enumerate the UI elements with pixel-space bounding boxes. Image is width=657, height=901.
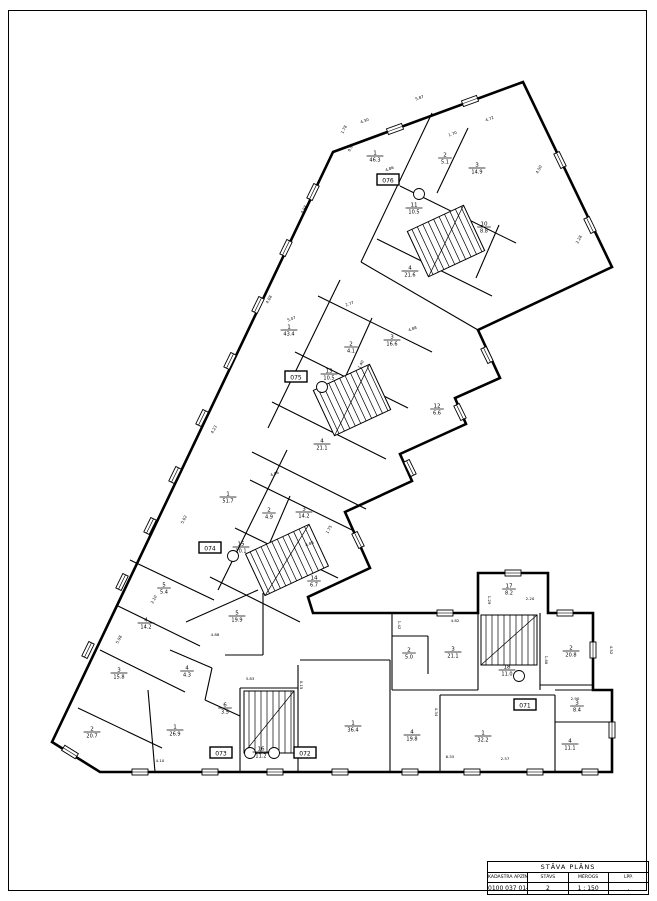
room-number: 3 [451,647,455,653]
title-block-page: . [608,883,648,895]
room-number: 4 [568,739,572,745]
room-area: 4.1 [347,349,355,355]
window-tick [582,769,598,775]
dimension-label: 4.88 [211,632,220,637]
room-area: 6.7 [310,583,318,589]
stair-hatch [244,691,294,753]
window-tick [402,769,418,775]
room-area: 5.4 [160,590,168,596]
dimension-label: 5.87 [415,94,425,102]
dimension-label: 1.78 [339,124,348,134]
stair-level-marker [414,189,425,200]
dimension-label: 0.15 [299,681,304,690]
dimension-label: 2.57 [501,756,510,761]
room-number: 4 [144,618,148,624]
dimension-label: 2.20 [526,596,535,601]
dimension-label: 4.34 [434,708,439,717]
unit-tag: 073 [210,747,232,758]
unit-tag: 072 [294,747,316,758]
unit-tag: 075 [285,371,307,382]
window-tick [505,570,521,576]
room-area: 8.8 [480,229,488,235]
dimension-label: 4.82 [451,618,460,623]
room-number: 3 [575,701,579,707]
room-area: 20.8 [565,653,576,659]
room-area: 8.4 [573,708,581,714]
room-area: 46.3 [369,158,380,164]
room-area: 16.6 [386,342,397,348]
unit-tag-label: 072 [299,751,311,758]
room-number: 11 [410,203,418,209]
room-number: 12 [433,404,440,410]
room-area: 21.1 [316,446,327,452]
room-area: 5.0 [405,655,413,661]
room-number: 2 [443,153,447,159]
room-number: 6 [223,703,227,709]
room-area: 32.2 [477,738,488,744]
room-area: 6.6 [433,411,441,417]
unit-tag-label: 071 [519,703,531,710]
room-number: 2 [407,648,411,654]
stair-level-marker [269,748,280,759]
room-number: 4 [410,730,414,736]
room-area: 21.1 [447,654,458,660]
room-number: 2 [90,727,94,733]
unit-tag: 074 [199,542,221,553]
dimension-label: 3.83 [246,676,255,681]
window-tick [557,610,573,616]
room-number: 13 [325,369,333,375]
room-area: 51.7 [222,499,233,505]
room-number: 10 [480,222,488,228]
room-area: 11.0 [501,672,512,678]
room-number: 2 [267,508,271,514]
room-area: 14.2 [140,625,151,631]
room-area: 10.1 [235,549,246,555]
window-tick [590,642,596,658]
room-number: 2 [349,342,353,348]
floor-plan-drawing: 076075074073072071 146.325.1314.91110.51… [0,0,657,901]
title-block-header-stavs: STĀVS [528,873,568,883]
room-area: 14.9 [471,170,482,176]
room-area: 26.9 [169,732,180,738]
room-area: 36.4 [347,728,358,734]
room-number: 4 [408,266,412,272]
dimension-label: 6.55 [446,754,455,759]
unit-tag: 071 [514,699,536,710]
room-area: 19.8 [406,737,417,743]
dimension-label: 1.88 [544,656,549,665]
room-number: 14 [310,576,318,582]
dimension-label: 4.52 [609,646,614,655]
window-tick [332,769,348,775]
room-area: 15.8 [113,675,124,681]
room-area: 11.2 [255,754,266,760]
stair-hatch [481,615,537,665]
stair-level-marker [514,671,525,682]
room-number: 3 [390,335,394,341]
room-number: 1 [481,731,485,737]
room-number: 1 [373,151,377,157]
room-number: 17 [505,584,513,590]
window-tick [202,769,218,775]
room-area: 5.1 [441,160,449,166]
stair-level-marker [245,748,256,759]
window-tick [437,610,453,616]
room-area: 4.9 [265,515,273,521]
room-area: 11.1 [564,746,575,752]
room-area: 10.5 [323,376,334,382]
unit-tag-label: 075 [290,375,302,382]
drawing-sheet: 076075074073072071 146.325.1314.91110.51… [0,0,657,901]
room-area: 14.2 [298,514,309,520]
room-area: 19.9 [231,618,242,624]
room-area: 3.5 [221,710,229,716]
dimension-label: 4.30 [360,117,370,125]
unit-tag-label: 073 [215,751,227,758]
room-area: 20.7 [86,734,97,740]
title-block-cadastre-number: 0100 037 0144 001 [488,883,528,895]
room-number: 1 [287,325,291,331]
unit-tag-label: 076 [382,178,394,185]
title-block-header-merogs: MĒROGS [568,873,608,883]
room-number: 3 [475,163,479,169]
room-number: 1 [173,725,177,731]
room-number: 4 [320,439,324,445]
room-area: 8.2 [505,591,513,597]
dimension-label: 1.29 [487,596,492,605]
room-area: 4.3 [183,673,191,679]
room-number: 5 [162,583,166,589]
window-tick [464,769,480,775]
room-number: 5 [235,611,239,617]
room-number: 3 [302,507,306,513]
room-area: 21.6 [404,273,415,279]
window-tick [609,722,615,738]
room-area: 10.5 [408,210,419,216]
room-number: 16 [257,747,265,753]
stair-level-marker [317,382,328,393]
title-block-floor-number: 2 [528,883,568,895]
room-number: 1 [351,721,355,727]
room-number: 3 [117,668,121,674]
room-number: 15 [237,542,245,548]
title-block: STĀVA PLĀNS KADASTRA APZĪMĒJUMS STĀVS MĒ… [487,861,649,893]
room-number: 4 [185,666,189,672]
window-tick [132,769,148,775]
title-block-header-kadastra: KADASTRA APZĪMĒJUMS [488,873,528,883]
title-block-scale: 1 : 150 [568,883,608,895]
title-block-title: STĀVA PLĀNS [488,862,649,873]
room-number: 1 [226,492,230,498]
dimension-label: 2.90 [571,696,580,701]
title-block-header-lpp: LPP. [608,873,648,883]
room-area: 43.4 [283,332,294,338]
room-number: 2 [569,646,573,652]
dimension-label: 1.42 [397,621,402,630]
window-tick [267,769,283,775]
window-tick [527,769,543,775]
room-number: 18 [503,665,511,671]
unit-tag: 076 [377,174,399,185]
unit-tag-label: 074 [204,546,216,553]
dimension-label: 4.10 [156,758,165,763]
